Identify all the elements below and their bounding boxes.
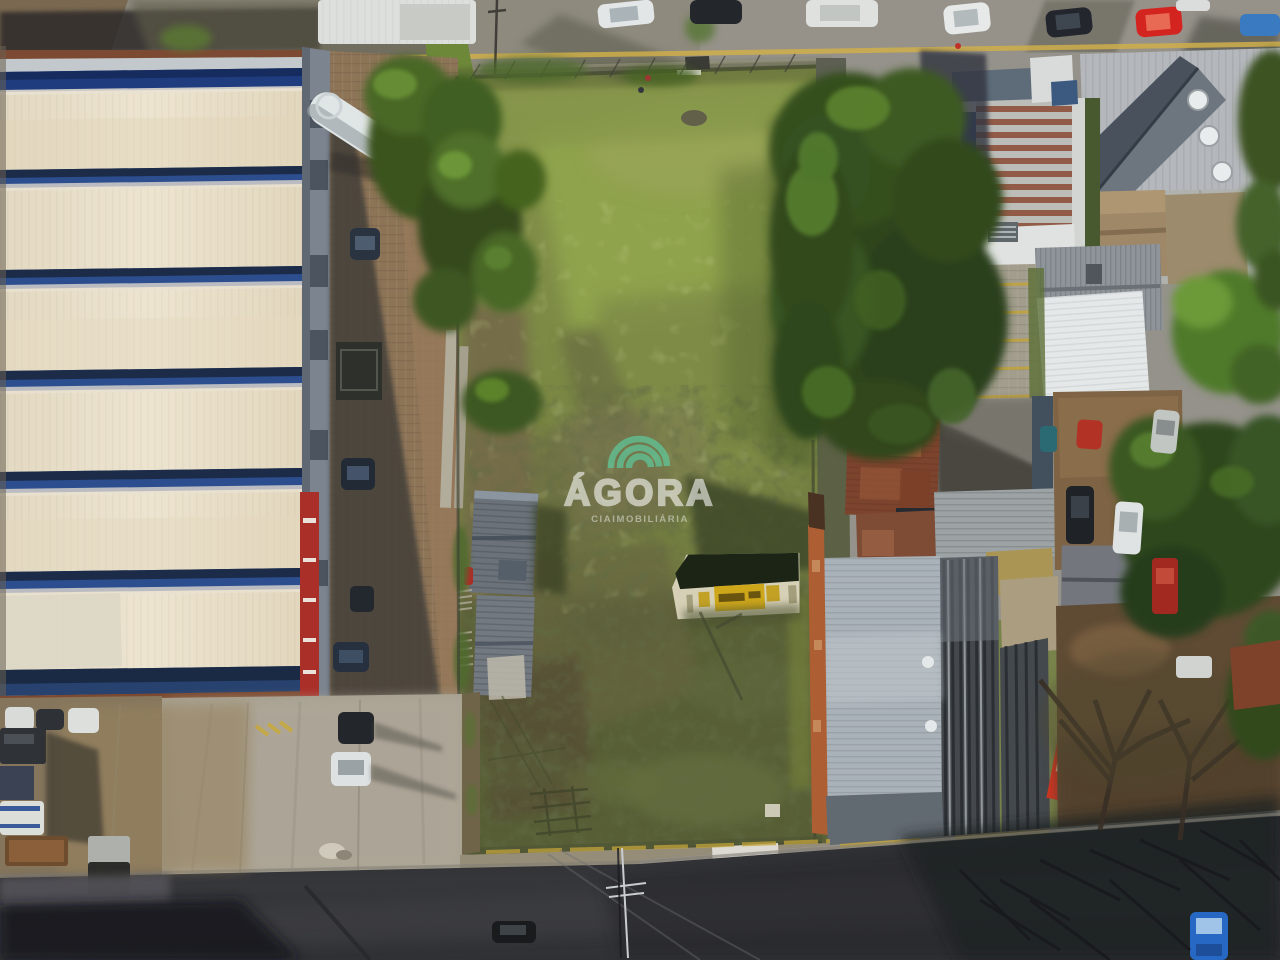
svg-text:ÁGORA: ÁGORA xyxy=(564,472,716,513)
svg-text:CIAIMOBILIÁRIA: CIAIMOBILIÁRIA xyxy=(591,514,689,525)
